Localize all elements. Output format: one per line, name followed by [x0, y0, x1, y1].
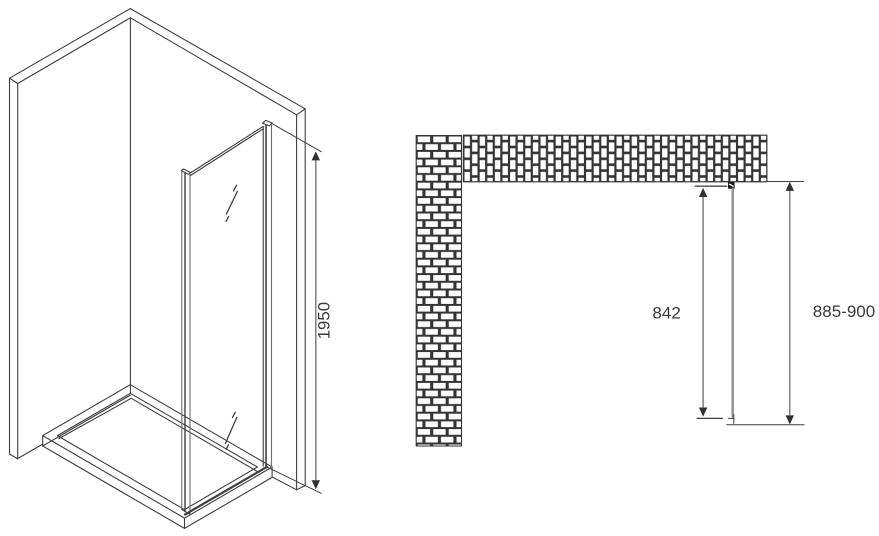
svg-text:842: 842 [652, 303, 680, 322]
svg-text:885-900: 885-900 [813, 302, 875, 321]
svg-text:1950: 1950 [314, 302, 333, 339]
